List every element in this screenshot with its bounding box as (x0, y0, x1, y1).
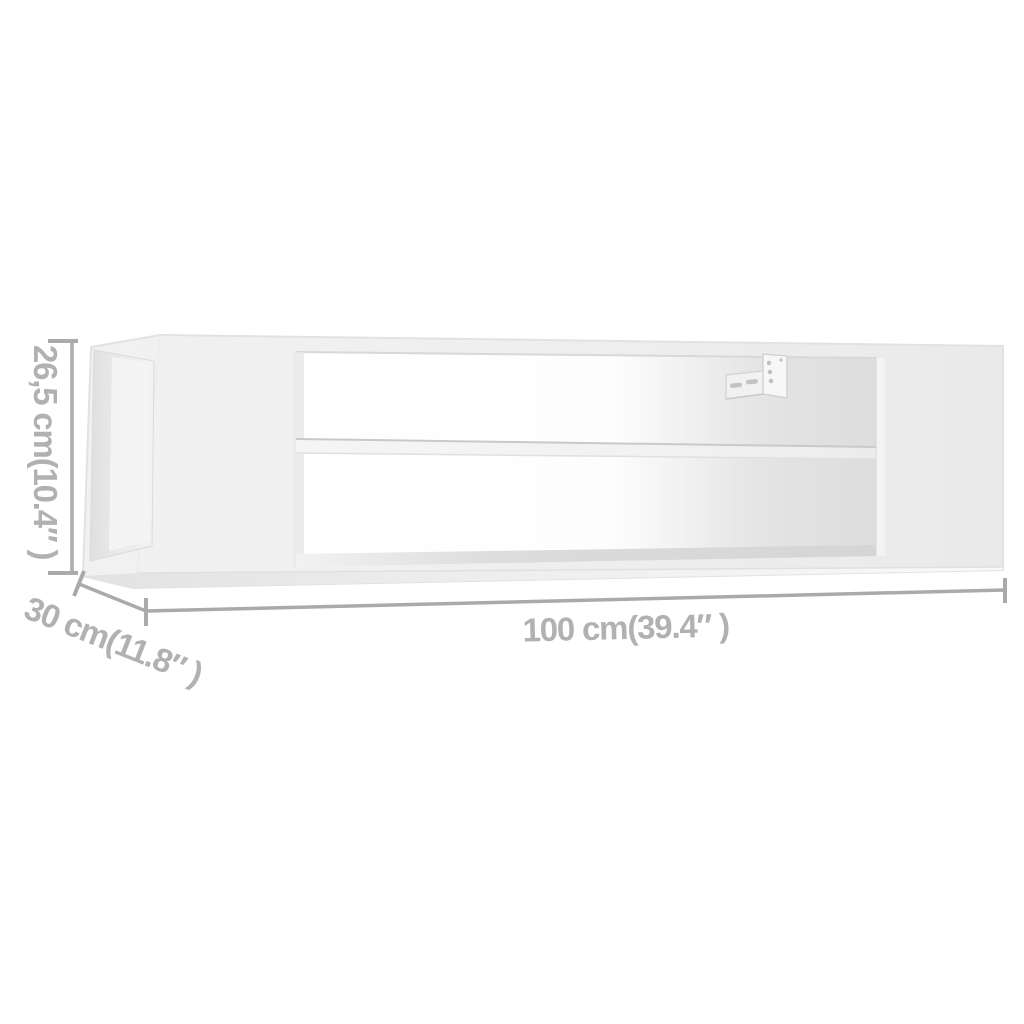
bracket-hole (769, 379, 773, 383)
bracket-hole (768, 370, 772, 374)
left-inner-reveal (293, 352, 304, 567)
left-end-inner-panel (109, 357, 150, 551)
height-dimension-label: 26,5 cm(10.4″ ) (27, 345, 64, 559)
depth-dimension-label: 30 cm(11.8″ ) (19, 589, 207, 692)
bracket-hole (779, 358, 782, 361)
diagram-canvas: 26,5 cm(10.4″ ) 30 cm(11.8″ ) 100 cm(39.… (0, 0, 1024, 1024)
bracket-hole (767, 361, 771, 365)
bracket-vertical-plate (763, 354, 787, 398)
tv-shelf-unit (83, 335, 1003, 588)
right-divider-reveal (876, 358, 885, 556)
open-shelf-section (293, 352, 885, 567)
open-section-interior (296, 352, 876, 567)
width-dimension-label: 100 cm(39.4″ ) (522, 606, 729, 648)
left-end-opening (90, 350, 154, 561)
product-dimension-diagram: 26,5 cm(10.4″ ) 30 cm(11.8″ ) 100 cm(39.… (0, 0, 1024, 1024)
